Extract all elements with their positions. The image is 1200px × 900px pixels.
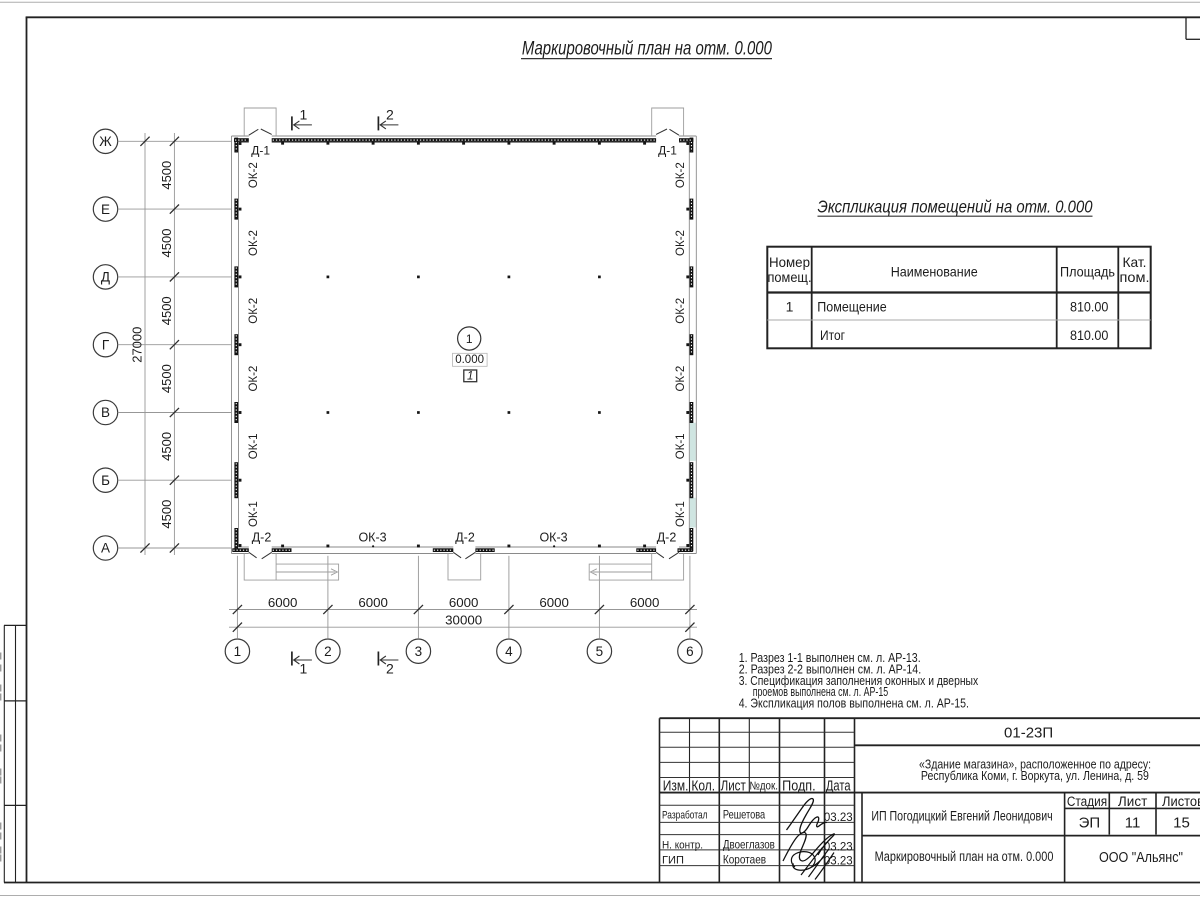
svg-text:1: 1 <box>786 299 794 315</box>
svg-text:Изм.: Изм. <box>663 777 689 794</box>
svg-text:Д-2: Д-2 <box>455 530 475 544</box>
svg-text:1: 1 <box>300 661 308 677</box>
svg-text:ОК-3: ОК-3 <box>539 530 567 544</box>
svg-text:Д-1: Д-1 <box>658 143 677 157</box>
svg-text:Помещение: Помещение <box>817 299 887 315</box>
svg-text:810.00: 810.00 <box>1070 327 1109 343</box>
svg-text:2: 2 <box>386 106 394 122</box>
svg-text:А: А <box>101 541 110 556</box>
svg-text:ЭП: ЭП <box>1079 814 1101 831</box>
svg-text:Н. контр.: Н. контр. <box>662 840 703 852</box>
svg-text:03.23: 03.23 <box>824 842 853 854</box>
svg-text:ОК-1: ОК-1 <box>675 501 687 527</box>
svg-text:6000: 6000 <box>630 595 660 610</box>
svg-text:Решетова: Решетова <box>723 808 766 822</box>
svg-text:27000: 27000 <box>129 327 144 363</box>
svg-text:Д-2: Д-2 <box>252 530 272 544</box>
svg-text:15: 15 <box>1173 814 1190 831</box>
svg-text:ОК-1: ОК-1 <box>675 433 687 459</box>
svg-text:810.00: 810.00 <box>1070 299 1109 315</box>
svg-text:1: 1 <box>466 332 473 346</box>
svg-text:Дата: Дата <box>826 777 851 794</box>
svg-text:ОК-2: ОК-2 <box>675 230 687 256</box>
svg-text:Номер: Номер <box>769 254 810 270</box>
svg-text:ОК-1: ОК-1 <box>248 501 260 527</box>
svg-text:Двоеглазов: Двоеглазов <box>723 838 775 852</box>
svg-text:ОК-2: ОК-2 <box>675 366 687 392</box>
svg-text:6000: 6000 <box>268 595 298 610</box>
svg-text:Подп.: Подп. <box>782 777 816 794</box>
svg-text:4500: 4500 <box>159 296 174 325</box>
svg-text:ОК-2: ОК-2 <box>675 298 687 324</box>
svg-text:№док.: №док. <box>749 781 778 793</box>
svg-text:4500: 4500 <box>159 432 174 461</box>
svg-text:6: 6 <box>686 644 694 659</box>
svg-text:Экспликация помещений на отм.: Экспликация помещений на отм. 0.000 <box>818 196 1093 216</box>
svg-text:Наименование: Наименование <box>891 264 978 280</box>
svg-text:5: 5 <box>596 644 604 659</box>
svg-text:1: 1 <box>234 644 242 659</box>
svg-text:ГИП: ГИП <box>662 855 684 867</box>
svg-text:Площадь: Площадь <box>1060 264 1115 280</box>
svg-text:Итог: Итог <box>820 327 845 343</box>
svg-text:1: 1 <box>467 371 473 383</box>
svg-text:6000: 6000 <box>358 595 388 610</box>
svg-text:Стадия: Стадия <box>1067 794 1107 809</box>
svg-text:6000: 6000 <box>539 595 569 610</box>
svg-text:ОК-2: ОК-2 <box>248 162 260 188</box>
svg-text:2: 2 <box>324 644 332 659</box>
svg-text:Республика Коми, г. Воркута, у: Республика Коми, г. Воркута, ул. Ленина,… <box>921 768 1149 783</box>
svg-text:Д: Д <box>101 270 110 285</box>
svg-text:Листов: Листов <box>1162 794 1200 809</box>
svg-text:Лист: Лист <box>721 777 746 794</box>
svg-text:ООО "Альянс": ООО "Альянс" <box>1099 849 1183 866</box>
svg-text:4: 4 <box>505 644 513 659</box>
svg-text:Маркировочный план на отм. 0.0: Маркировочный план на отм. 0.000 <box>875 849 1054 864</box>
svg-text:Е: Е <box>101 202 110 217</box>
svg-text:ОК-2: ОК-2 <box>248 298 260 324</box>
svg-text:пом.: пом. <box>1120 269 1150 285</box>
svg-text:Маркировочный план на отм. 0.0: Маркировочный план на отм. 0.000 <box>522 39 772 60</box>
svg-text:Б: Б <box>101 473 110 488</box>
svg-text:6000: 6000 <box>449 595 479 610</box>
svg-text:4500: 4500 <box>159 161 174 190</box>
svg-text:ИП Погодицкий Евгений Леонидов: ИП Погодицкий Евгений Леонидович <box>871 809 1052 824</box>
svg-text:4500: 4500 <box>159 364 174 393</box>
svg-text:03.23: 03.23 <box>824 812 853 824</box>
svg-text:Разработал: Разработал <box>662 810 708 822</box>
svg-text:11: 11 <box>1125 814 1141 831</box>
svg-text:Д-1: Д-1 <box>251 143 270 157</box>
svg-text:3: 3 <box>415 644 423 659</box>
svg-text:Г: Г <box>102 337 110 352</box>
svg-text:Коротаев: Коротаев <box>723 853 766 867</box>
svg-text:ОК-2: ОК-2 <box>248 230 260 256</box>
svg-text:В: В <box>101 405 110 420</box>
svg-text:Лист: Лист <box>1118 794 1147 809</box>
svg-text:помещ.: помещ. <box>768 269 812 285</box>
svg-text:Кат.: Кат. <box>1123 254 1147 270</box>
svg-text:ОК-1: ОК-1 <box>248 433 260 459</box>
svg-text:Ж: Ж <box>99 134 112 149</box>
svg-text:0.000: 0.000 <box>455 354 484 366</box>
svg-text:Кол.: Кол. <box>691 777 715 794</box>
svg-text:4. Экспликация полов выполнена: 4. Экспликация полов выполнена см. л. АР… <box>739 697 969 711</box>
svg-text:ОК-3: ОК-3 <box>358 530 386 544</box>
svg-text:01-23П: 01-23П <box>1004 725 1053 742</box>
svg-text:ОК-2: ОК-2 <box>675 162 687 188</box>
svg-text:Д-2: Д-2 <box>657 530 677 544</box>
svg-text:ОК-2: ОК-2 <box>248 366 260 392</box>
svg-text:30000: 30000 <box>445 613 482 628</box>
svg-text:4500: 4500 <box>159 229 174 258</box>
svg-text:1: 1 <box>300 106 308 122</box>
svg-text:2: 2 <box>386 661 394 677</box>
svg-text:4500: 4500 <box>159 500 174 529</box>
